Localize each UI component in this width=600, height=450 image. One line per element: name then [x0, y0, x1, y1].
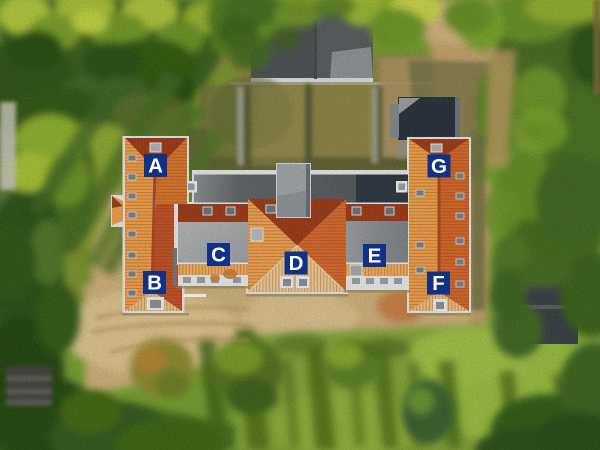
svg-text:C: C: [211, 244, 226, 267]
svg-text:A: A: [148, 155, 163, 178]
svg-text:F: F: [432, 272, 445, 295]
svg-text:D: D: [289, 252, 304, 275]
svg-text:B: B: [147, 272, 162, 295]
svg-text:E: E: [368, 245, 382, 268]
svg-text:G: G: [431, 155, 447, 178]
